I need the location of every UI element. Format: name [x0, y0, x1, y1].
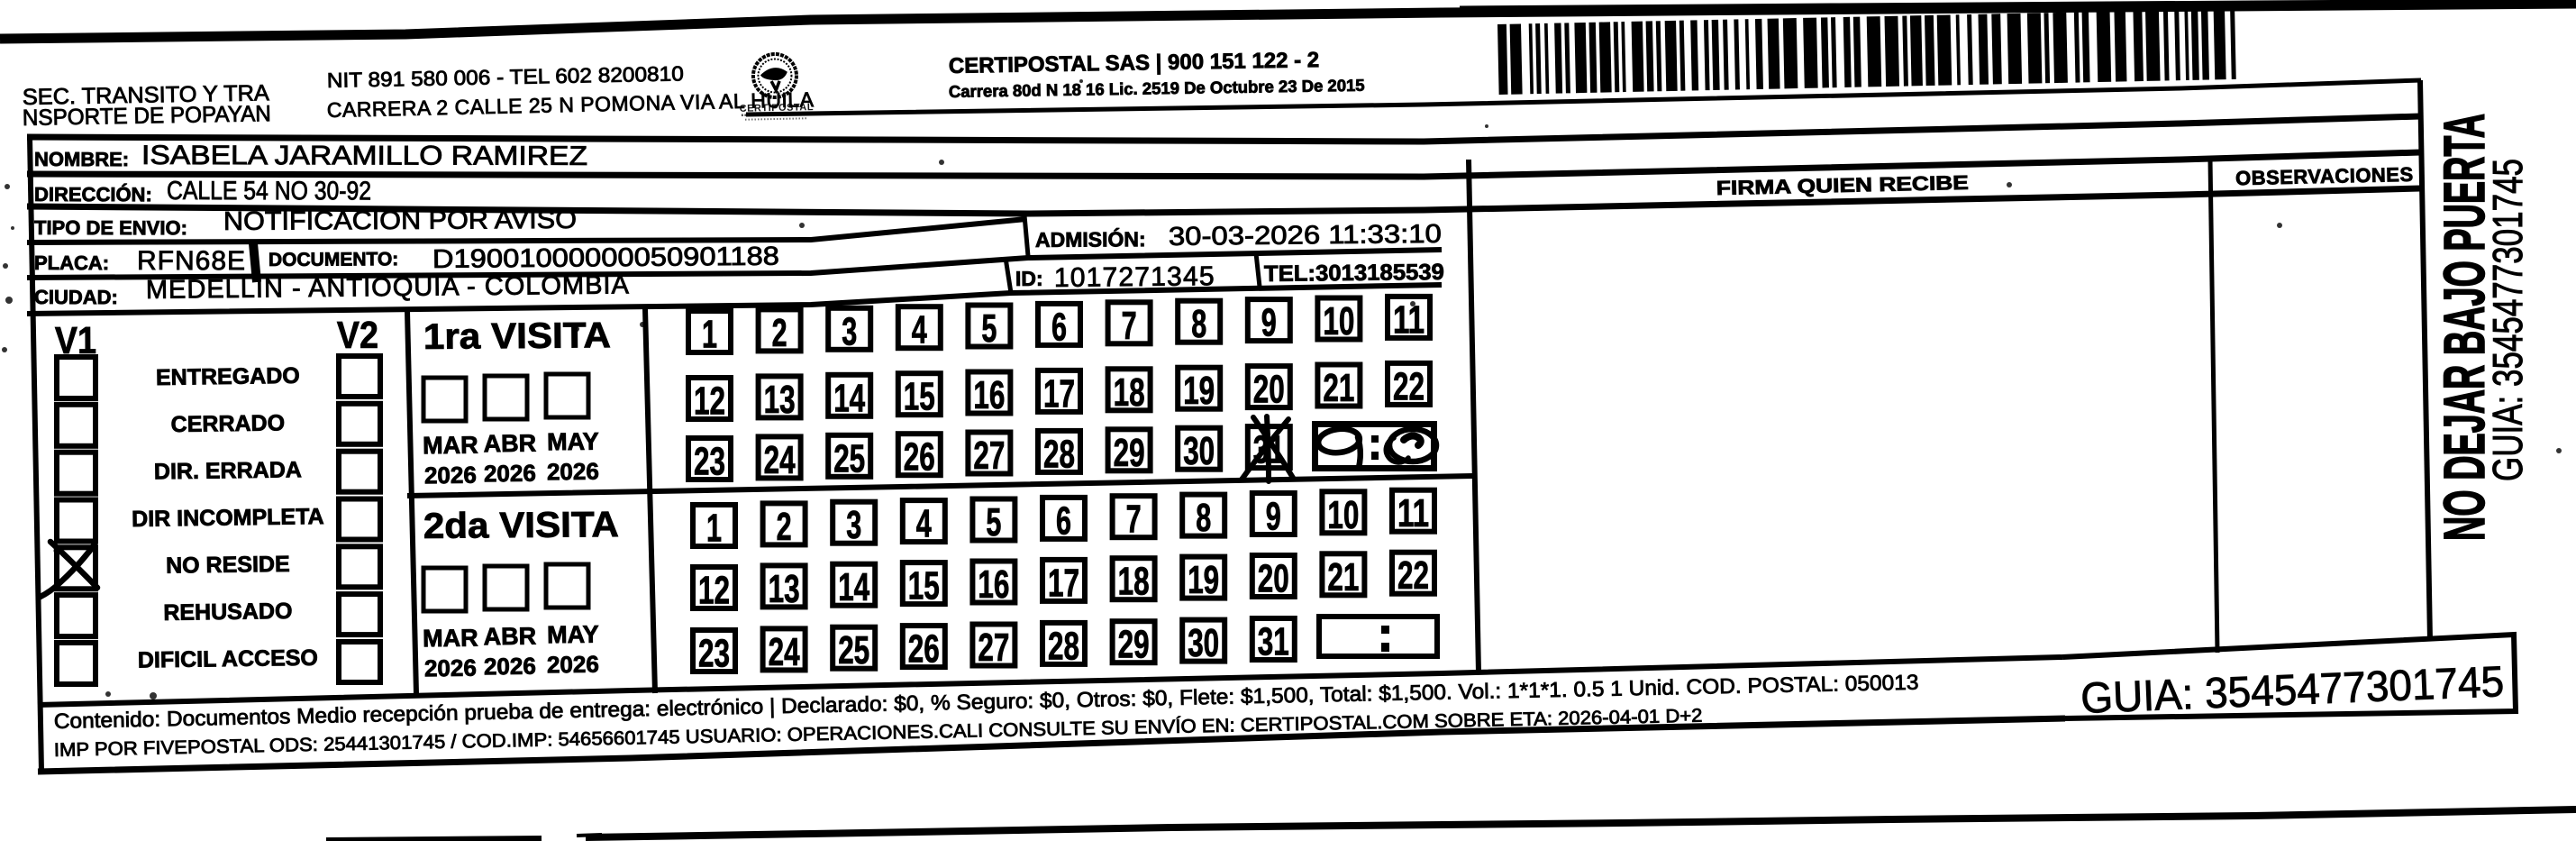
svg-text:10: 10 — [1327, 493, 1359, 537]
svg-text:2026: 2026 — [547, 651, 599, 679]
svg-text:3: 3 — [846, 503, 861, 547]
svg-text:8: 8 — [1191, 302, 1206, 346]
svg-text:ABR: ABR — [483, 430, 536, 458]
svg-text:ISABELA JARAMILLO RAMIREZ: ISABELA JARAMILLO RAMIREZ — [141, 141, 587, 171]
svg-text:MAY: MAY — [547, 621, 599, 649]
svg-text:1ra VISITA: 1ra VISITA — [423, 315, 611, 357]
svg-text:CERRADO: CERRADO — [170, 410, 285, 437]
svg-text:ID:: ID: — [1015, 267, 1043, 290]
svg-text:15: 15 — [904, 375, 935, 419]
svg-text:RFN68E: RFN68E — [137, 246, 246, 276]
svg-text:TIPO DE ENVIO:: TIPO DE ENVIO: — [34, 216, 187, 239]
svg-text:3: 3 — [842, 309, 857, 353]
svg-text:19: 19 — [1188, 558, 1219, 602]
svg-text:MAY: MAY — [547, 428, 599, 456]
svg-text:DOCUMENTO:: DOCUMENTO: — [269, 249, 398, 270]
svg-text:24: 24 — [769, 630, 800, 674]
svg-text:29: 29 — [1118, 623, 1150, 667]
svg-text:NOMBRE:: NOMBRE: — [34, 148, 129, 170]
svg-text:DIFICIL ACCESO: DIFICIL ACCESO — [138, 645, 318, 673]
svg-text:7: 7 — [1122, 304, 1137, 348]
svg-text:ADMISIÓN:: ADMISIÓN: — [1035, 226, 1146, 251]
svg-text:21: 21 — [1327, 555, 1359, 599]
svg-text:CALLE 54 NO 30-92: CALLE 54 NO 30-92 — [167, 177, 371, 206]
svg-text:DIR INCOMPLETA: DIR INCOMPLETA — [132, 504, 324, 532]
svg-text:MAR: MAR — [423, 625, 478, 653]
svg-text:12: 12 — [698, 569, 730, 613]
svg-text:5: 5 — [986, 500, 1001, 544]
svg-text:4: 4 — [912, 308, 927, 352]
svg-text:13: 13 — [764, 378, 796, 422]
svg-text:GUIA: 3545477301745: GUIA: 3545477301745 — [2484, 159, 2531, 481]
svg-text:22: 22 — [1397, 553, 1429, 598]
svg-text:1017271345: 1017271345 — [1054, 261, 1215, 293]
svg-text:ABR: ABR — [483, 623, 536, 651]
svg-text:16: 16 — [973, 373, 1005, 417]
svg-text:NOTIFICACION POR AVISO: NOTIFICACION POR AVISO — [223, 206, 577, 236]
svg-text:19: 19 — [1183, 369, 1215, 413]
svg-text:2: 2 — [772, 311, 787, 355]
svg-text:TEL:3013185539: TEL:3013185539 — [1264, 260, 1444, 287]
svg-text:14: 14 — [833, 376, 865, 420]
svg-text:16: 16 — [978, 562, 1009, 607]
svg-text:6: 6 — [1051, 305, 1067, 349]
svg-text:5: 5 — [981, 306, 997, 351]
svg-text:30-03-2026 11:33:10: 30-03-2026 11:33:10 — [1169, 220, 1442, 251]
svg-text:22: 22 — [1393, 364, 1425, 408]
svg-text:14: 14 — [838, 565, 869, 609]
svg-text:18: 18 — [1118, 560, 1150, 604]
svg-text:DIR. ERRADA: DIR. ERRADA — [154, 457, 302, 484]
svg-text:9: 9 — [1261, 301, 1277, 345]
svg-text:29: 29 — [1114, 431, 1145, 475]
svg-text:2026: 2026 — [424, 462, 477, 489]
svg-text:2: 2 — [777, 505, 792, 549]
svg-text:25: 25 — [838, 628, 869, 672]
svg-text:4: 4 — [916, 502, 932, 546]
svg-text:26: 26 — [904, 435, 935, 480]
svg-text:9: 9 — [1266, 495, 1281, 539]
svg-text:MEDELLIN - ANTIOQUIA - COLOMBI: MEDELLIN - ANTIOQUIA - COLOMBIA — [146, 270, 630, 305]
svg-text:D19001000000050901188: D19001000000050901188 — [432, 242, 779, 274]
svg-text:13: 13 — [769, 567, 800, 611]
svg-text:NSPORTE DE POPAYAN: NSPORTE DE POPAYAN — [23, 101, 271, 131]
svg-text:11: 11 — [1397, 491, 1429, 535]
svg-text:31: 31 — [1258, 620, 1289, 664]
svg-text:25: 25 — [833, 436, 865, 480]
svg-text:28: 28 — [1048, 624, 1079, 668]
svg-text:17: 17 — [1048, 561, 1079, 605]
svg-text:V2: V2 — [337, 314, 378, 356]
svg-text:18: 18 — [1114, 370, 1145, 415]
svg-text:30: 30 — [1188, 621, 1219, 665]
svg-text:30: 30 — [1183, 429, 1215, 473]
svg-text:23: 23 — [698, 632, 730, 676]
svg-text:20: 20 — [1253, 368, 1285, 412]
svg-text:17: 17 — [1043, 371, 1075, 416]
svg-text:2026: 2026 — [484, 460, 536, 488]
svg-text:10: 10 — [1323, 299, 1354, 343]
svg-text:REHUSADO: REHUSADO — [163, 599, 292, 626]
svg-text:2026: 2026 — [547, 458, 599, 486]
svg-text:28: 28 — [1043, 432, 1075, 476]
svg-text:2026: 2026 — [424, 654, 477, 682]
svg-text:NO RESIDE: NO RESIDE — [166, 552, 290, 579]
svg-text:ENTREGADO: ENTREGADO — [156, 363, 300, 390]
svg-text:23: 23 — [694, 440, 725, 484]
svg-text:1: 1 — [702, 313, 717, 357]
svg-text:12: 12 — [694, 379, 725, 424]
svg-text:CIUDAD:: CIUDAD: — [34, 286, 118, 308]
svg-text:MAR: MAR — [423, 432, 478, 460]
svg-text:6: 6 — [1056, 498, 1071, 543]
svg-text:1: 1 — [706, 507, 722, 551]
svg-text:24: 24 — [764, 438, 796, 482]
svg-text:26: 26 — [908, 627, 940, 672]
svg-text:2026: 2026 — [484, 653, 536, 681]
svg-text:27: 27 — [973, 434, 1005, 478]
svg-text:15: 15 — [908, 564, 940, 608]
svg-text:27: 27 — [978, 626, 1009, 670]
svg-text:8: 8 — [1196, 496, 1211, 540]
svg-text:2da VISITA: 2da VISITA — [423, 505, 619, 546]
svg-text:7: 7 — [1126, 498, 1142, 542]
svg-text:21: 21 — [1323, 366, 1354, 410]
svg-text:PLACA:: PLACA: — [34, 251, 109, 274]
svg-text:20: 20 — [1258, 557, 1289, 601]
svg-text:11: 11 — [1393, 297, 1425, 342]
svg-text:OBSERVACIONES: OBSERVACIONES — [2235, 163, 2414, 189]
svg-text:DIRECCIÓN:: DIRECCIÓN: — [34, 183, 152, 206]
